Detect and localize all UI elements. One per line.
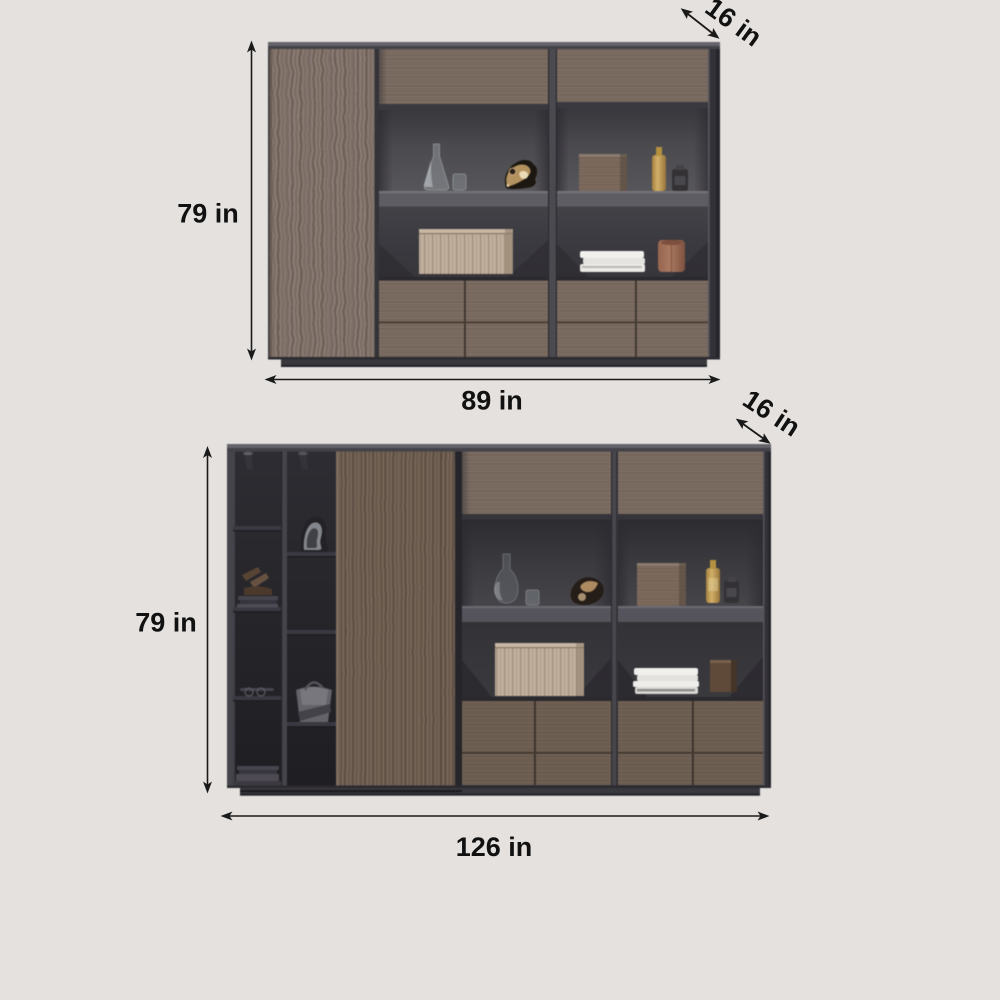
svg-text:89 in: 89 in — [461, 386, 523, 416]
svg-text:79 in: 79 in — [135, 608, 197, 638]
svg-text:126 in: 126 in — [456, 832, 533, 862]
svg-text:79 in: 79 in — [177, 199, 239, 229]
